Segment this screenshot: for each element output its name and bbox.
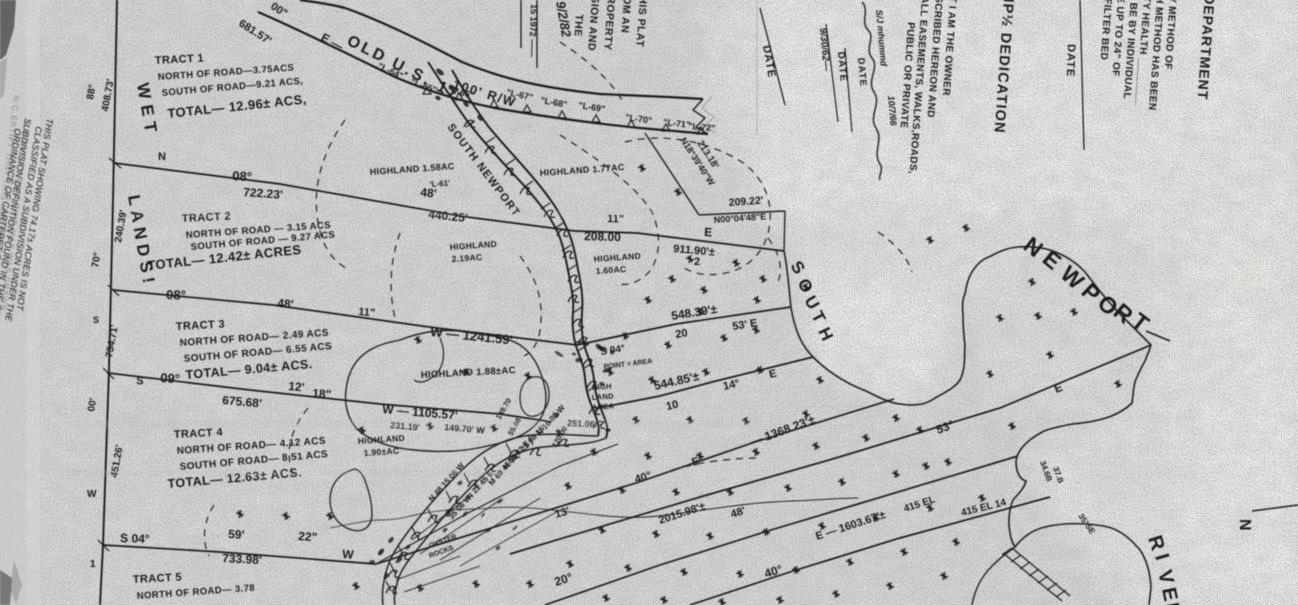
svg-text:DATE: DATE <box>1064 44 1077 78</box>
svg-text:733.98': 733.98' <box>222 551 262 567</box>
svg-text:12': 12' <box>288 379 306 394</box>
svg-text:209.22': 209.22' <box>728 195 763 209</box>
svg-text:09°: 09° <box>160 370 181 386</box>
svg-text:THE: THE <box>571 14 585 37</box>
svg-text:08°: 08° <box>232 168 253 184</box>
svg-text:1: 1 <box>90 559 96 570</box>
svg-text:2: 2 <box>694 256 700 268</box>
svg-text:LAND: LAND <box>592 391 615 402</box>
svg-text:1.60AC: 1.60AC <box>595 264 626 276</box>
svg-text:22": 22" <box>298 529 318 544</box>
svg-text:'L-61': 'L-61' <box>430 179 451 189</box>
svg-text:AREA: AREA <box>592 401 615 412</box>
svg-text:2.19AC: 2.19AC <box>451 252 482 264</box>
svg-text:59': 59' <box>228 527 245 542</box>
svg-text:00': 00' <box>86 397 99 412</box>
svg-text:W: W <box>87 489 97 500</box>
svg-text:11": 11" <box>358 306 376 319</box>
svg-text:722.23': 722.23' <box>243 185 284 202</box>
svg-text:48': 48' <box>277 296 295 311</box>
svg-text:W: W <box>342 547 355 562</box>
svg-text:S: S <box>93 315 99 325</box>
svg-text:15 1972 ——: 15 1972 —— <box>527 4 539 57</box>
svg-text:N: N <box>158 151 166 163</box>
svg-text:HIGH: HIGH <box>592 382 613 392</box>
svg-text:E: E <box>704 225 713 239</box>
svg-text:OM AN: OM AN <box>618 0 633 34</box>
svg-text:208.00: 208.00 <box>584 229 621 244</box>
svg-text:20: 20 <box>675 327 689 341</box>
svg-text:08°: 08° <box>166 287 186 303</box>
svg-text:N: N <box>1236 519 1253 531</box>
svg-text:S: S <box>136 375 144 387</box>
svg-text:S 04°: S 04° <box>120 531 150 546</box>
svg-text:18": 18" <box>312 386 332 402</box>
